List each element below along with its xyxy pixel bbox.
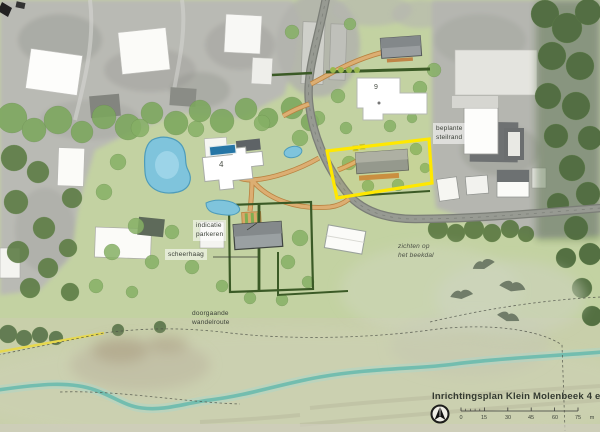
label-slope-line1: beplante <box>436 124 463 133</box>
label-route-line2: wandelroute <box>192 318 230 327</box>
scale-tick-label: 45 <box>528 415 534 421</box>
parcel-number-4: 4 <box>219 160 223 169</box>
north-arrow-icon <box>432 406 449 423</box>
label-doorgaande-wandelroute: doorgaande wandelroute <box>192 309 230 328</box>
scale-tick-label: 30 <box>505 415 511 421</box>
label-parking-line1: indicatie <box>196 221 223 230</box>
label-indicatie-parkeren: indicatie parkeren <box>193 220 226 241</box>
scale-tick-label: 15 <box>481 415 487 421</box>
bottom-band <box>0 424 600 432</box>
scale-tick-label: 0 <box>459 415 462 421</box>
scale-tick-label: 60 <box>552 415 558 421</box>
map-artwork <box>0 0 600 432</box>
barn-building <box>233 221 283 249</box>
scale-unit-label: m <box>590 415 595 421</box>
parcel-number-9: 9 <box>374 84 378 91</box>
label-views-line2: het beekdal <box>398 251 434 260</box>
plan-title: Inrichtingsplan Klein Molenbeek 4 en 9 <box>432 391 600 402</box>
label-slope-line2: steilrand <box>436 133 463 142</box>
label-views-line1: zichten op <box>398 242 434 251</box>
label-route-line1: doorgaande <box>192 309 230 318</box>
label-zichten-op-het-beekdal: zichten op het beekdal <box>398 242 434 261</box>
label-beplante-steilrand: beplante steilrand <box>433 123 466 144</box>
label-parking-line2: parkeren <box>196 230 223 239</box>
label-scheerhaag: scheerhaag <box>165 249 207 260</box>
scale-tick-label: 75 <box>575 415 581 421</box>
site-plan-map: indicatie parkeren scheerhaag doorgaande… <box>0 0 600 432</box>
